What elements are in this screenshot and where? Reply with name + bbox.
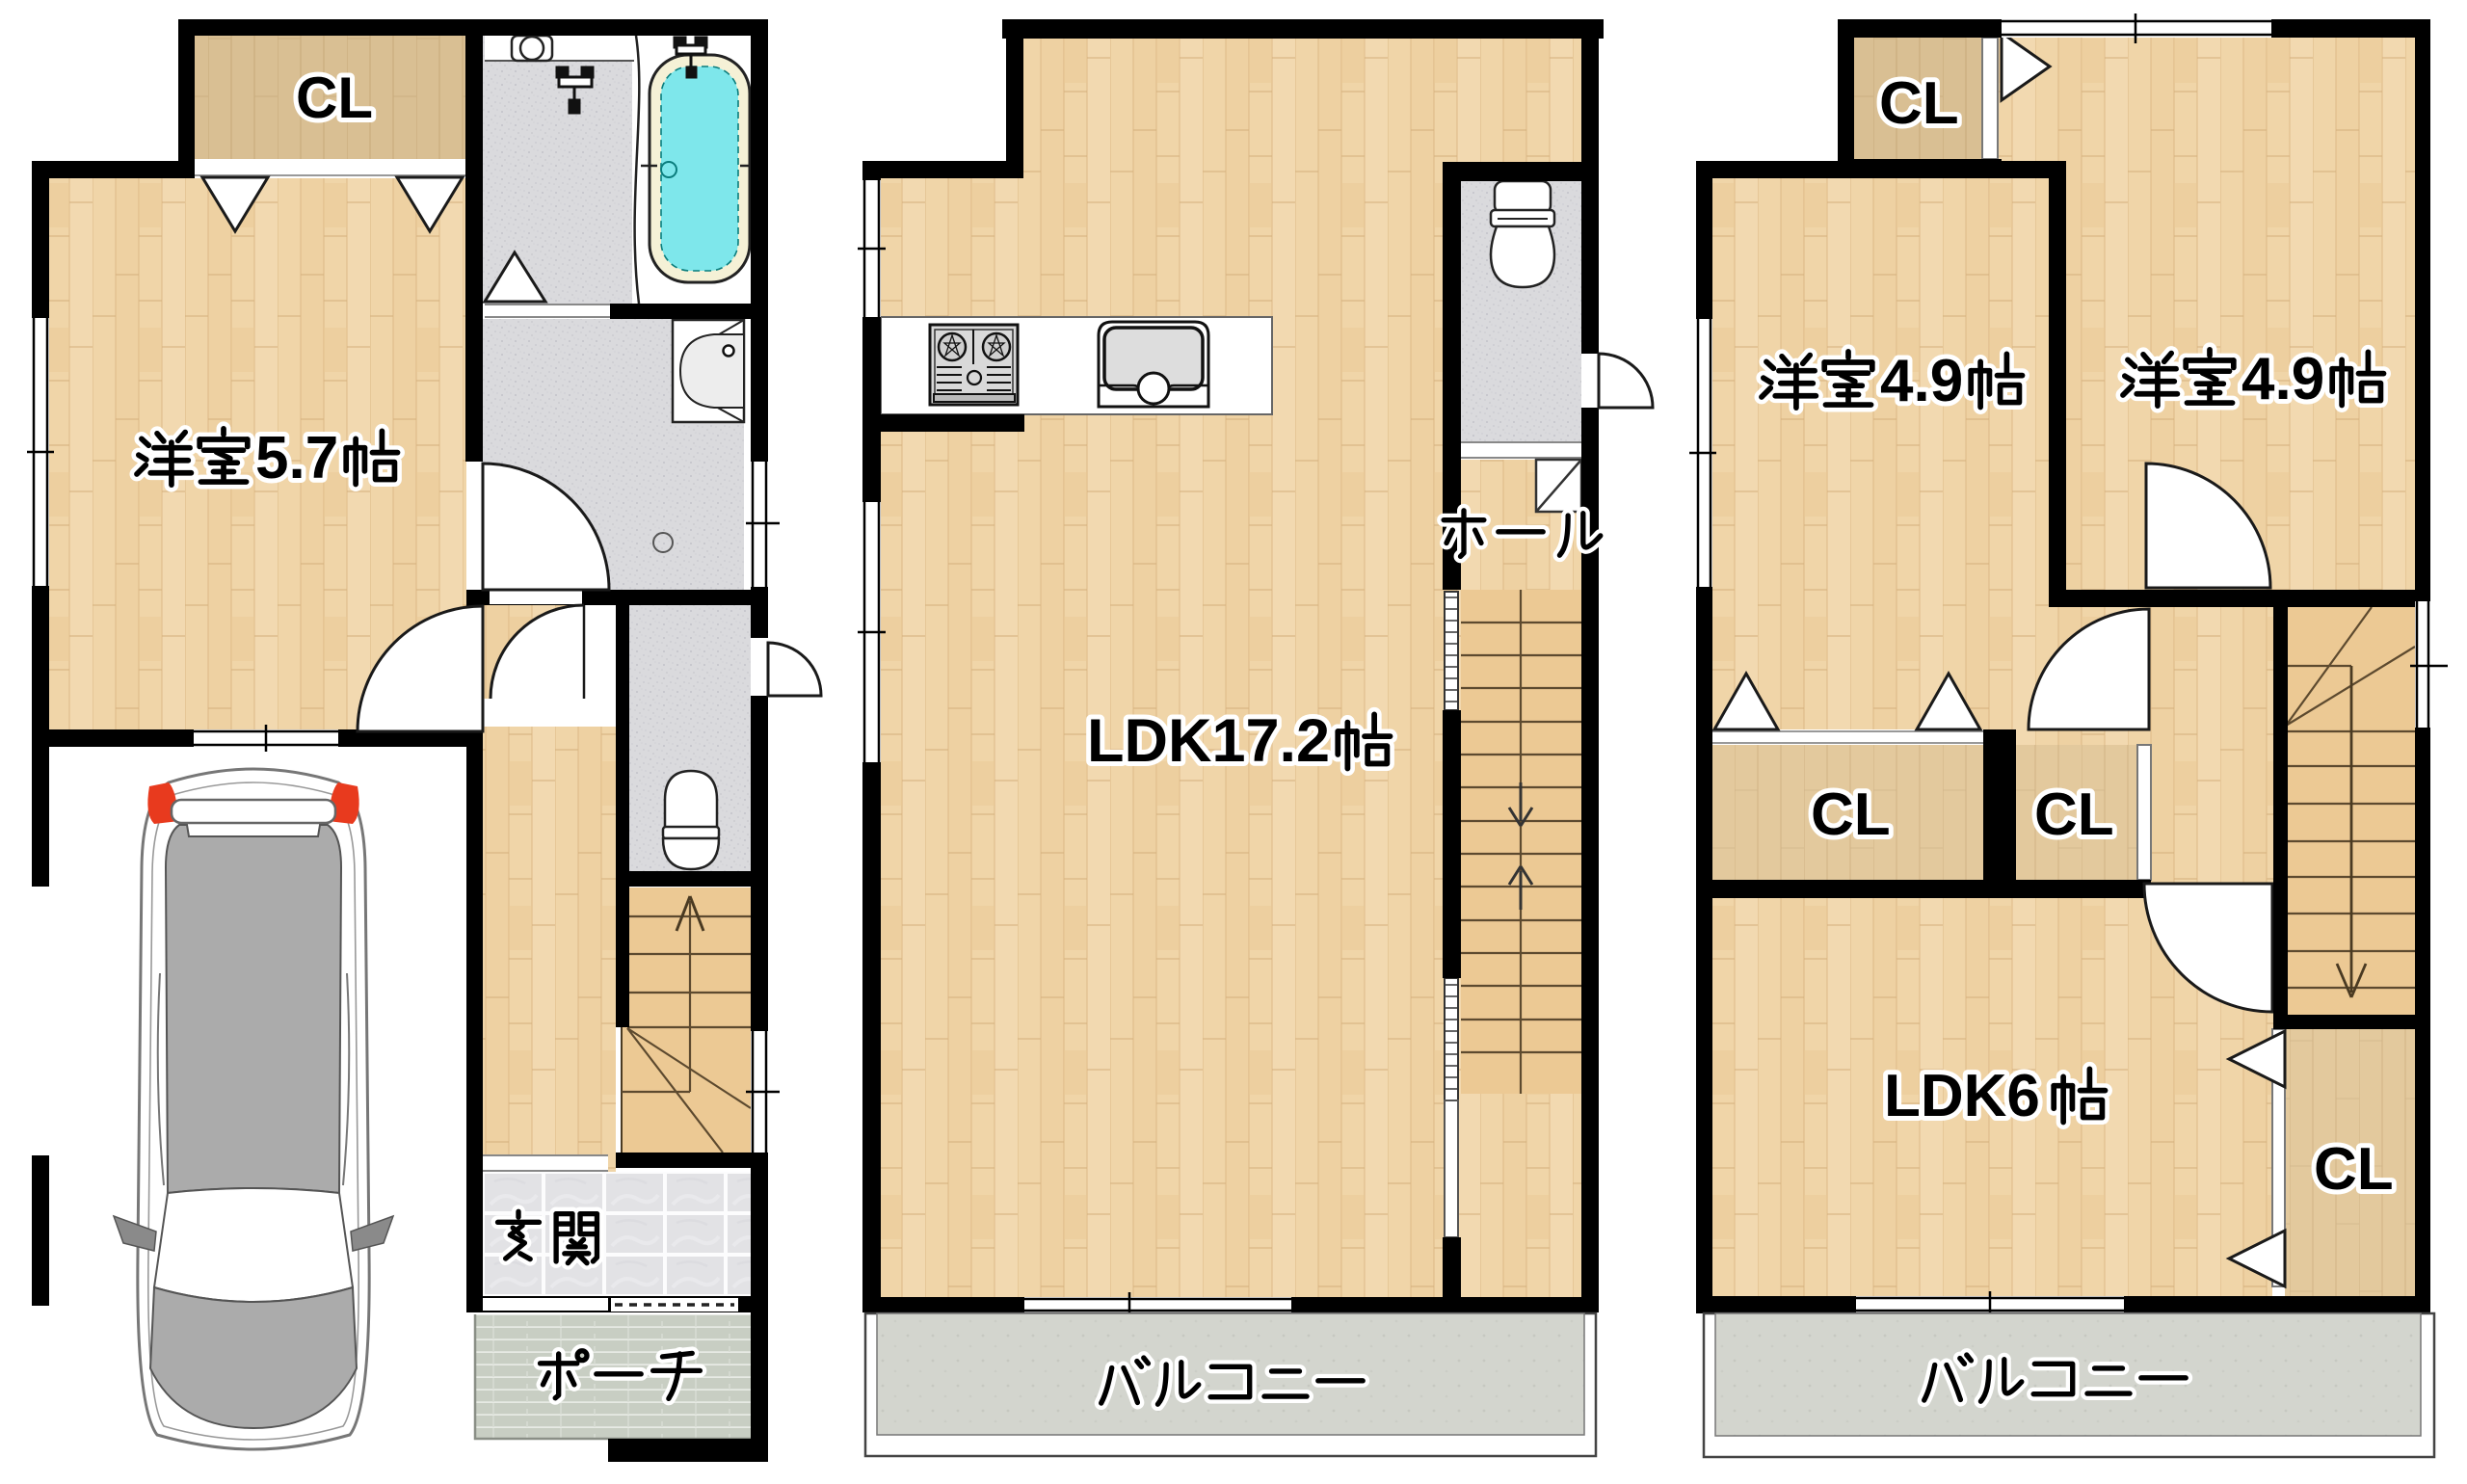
svg-text:4.9: 4.9 (2242, 346, 2324, 412)
svg-text:CL: CL (2314, 1136, 2394, 1203)
svg-text:LDK17.2: LDK17.2 (1087, 707, 1330, 775)
svg-text:CL: CL (1811, 782, 1891, 848)
svg-text:CL: CL (296, 66, 373, 130)
svg-text:4.9: 4.9 (1880, 348, 1963, 414)
svg-text:CL: CL (2034, 782, 2114, 848)
svg-text:5.7: 5.7 (255, 425, 338, 491)
svg-text:CL: CL (1879, 70, 1959, 137)
svg-text:LDK6: LDK6 (1884, 1063, 2040, 1129)
